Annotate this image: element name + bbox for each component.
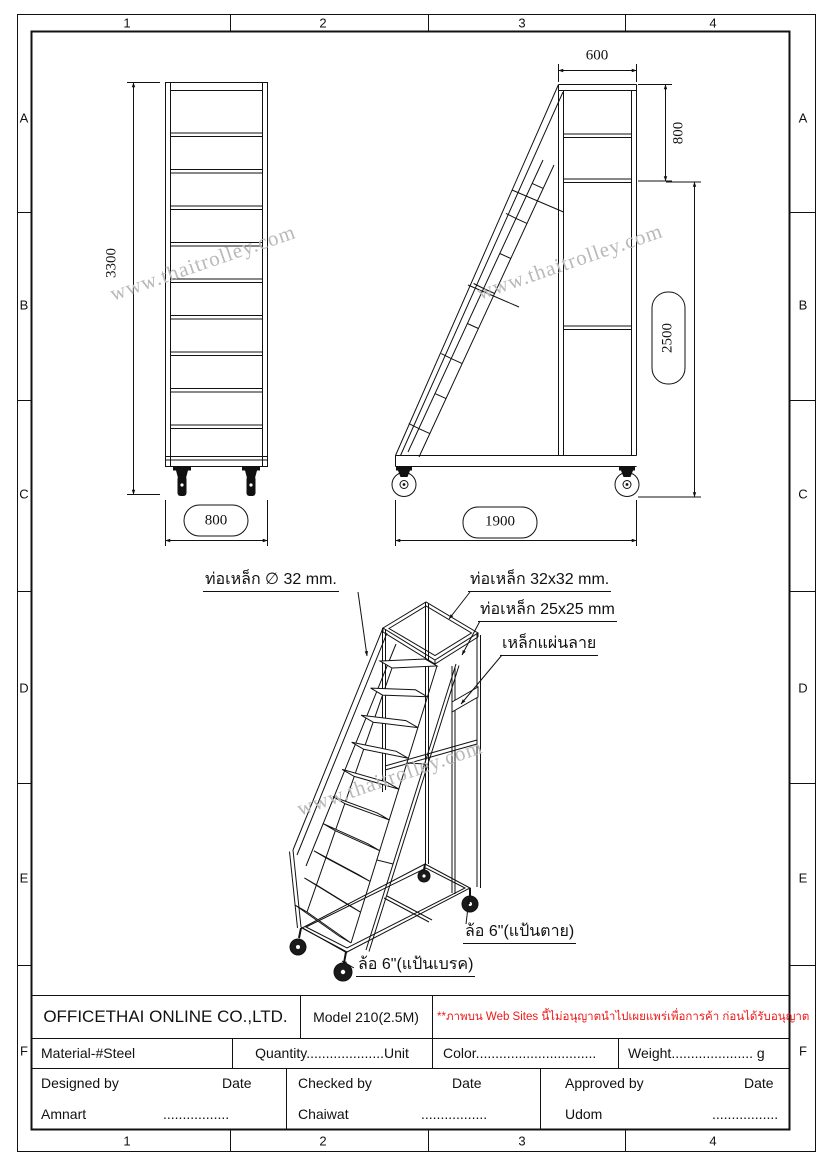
approved-date-label: Date: [744, 1068, 774, 1098]
grid-row-c-left: C: [19, 487, 28, 502]
grid-col-2-bottom: 2: [319, 1134, 326, 1149]
drawing-linework: [0, 0, 826, 1163]
callout-caster-fixed: ล้อ 6"(แป้นตาย): [463, 922, 576, 944]
approver-date-dots: .................: [712, 1099, 778, 1129]
grid-row-a-right: A: [799, 111, 808, 126]
grid-col-3-bottom: 3: [518, 1134, 525, 1149]
dim-side-lower-height: 2500: [660, 323, 677, 353]
grid-row-b-left: B: [20, 298, 29, 313]
designer-date-dots: .................: [163, 1099, 229, 1129]
dim-side-top-width: 600: [586, 48, 609, 65]
grid-col-1-top: 1: [123, 16, 130, 31]
material-label: Material-#Steel: [41, 1038, 135, 1068]
sheet-border: [18, 15, 816, 1152]
grid-col-3-top: 3: [518, 16, 525, 31]
callout-tube-25x25: ท่อเหล็ก 25x25 mm: [478, 600, 617, 622]
web-notice: **ภาพบน Web Sites นี้ไม่อนุญาตนำไปเผยแพร…: [437, 995, 809, 1038]
grid-row-e-right: E: [799, 871, 808, 886]
grid-row-a-left: A: [20, 111, 29, 126]
dim-side-base-length: 1900: [485, 514, 515, 531]
grid-col-4-bottom: 4: [709, 1134, 716, 1149]
quantity-label: Quantity....................Unit: [232, 1038, 432, 1068]
grid-row-d-left: D: [19, 681, 28, 696]
callout-tube-round: ท่อเหล็ก ∅ 32 mm.: [203, 570, 339, 592]
color-label: Color...............................: [443, 1038, 596, 1068]
dim-front-height: 3300: [104, 248, 121, 278]
drawing-sheet: 1 2 3 4 1 2 3 4 A B C D E F A B C D E F …: [0, 0, 826, 1163]
checked-by-label: Checked by: [298, 1068, 372, 1098]
company-name: OFFICETHAI ONLINE CO.,LTD.: [31, 995, 300, 1038]
grid-row-c-right: C: [798, 487, 807, 502]
weight-label: Weight..................... g: [628, 1038, 765, 1068]
grid-row-f-right: F: [799, 1044, 807, 1059]
grid-row-e-left: E: [20, 871, 29, 886]
grid-col-4-top: 4: [709, 16, 716, 31]
designed-date-label: Date: [222, 1068, 252, 1098]
grid-row-f-left: F: [20, 1044, 28, 1059]
grid-row-b-right: B: [799, 298, 808, 313]
side-casters: [392, 467, 639, 497]
dim-800-side-lines: [638, 85, 672, 182]
checker-date-dots: .................: [421, 1099, 487, 1129]
model-label: Model 210(2.5M): [300, 995, 432, 1038]
side-view: [392, 64, 701, 546]
grid-col-2-top: 2: [319, 16, 326, 31]
dim-side-upper-height: 800: [671, 122, 688, 145]
checker-name: Chaiwat: [298, 1099, 349, 1129]
dim-600-lines: [559, 64, 637, 82]
approved-by-label: Approved by: [565, 1068, 644, 1098]
front-view: [127, 83, 268, 547]
dim-front-width: 800: [205, 513, 228, 530]
designed-by-label: Designed by: [41, 1068, 119, 1098]
front-casters: [173, 467, 260, 496]
grid-row-d-right: D: [798, 681, 807, 696]
callout-caster-brake: ล้อ 6"(แป้นเบรค): [356, 955, 475, 977]
dim-1900-lines: [396, 500, 637, 546]
approver-name: Udom: [565, 1099, 602, 1129]
checked-date-label: Date: [452, 1068, 482, 1098]
callout-tube-32x32: ท่อเหล็ก 32x32 mm.: [468, 570, 611, 592]
grid-col-1-bottom: 1: [123, 1134, 130, 1149]
callout-checker-plate: เหล็กแผ่นลาย: [500, 634, 598, 656]
designer-name: Amnart: [41, 1099, 86, 1129]
